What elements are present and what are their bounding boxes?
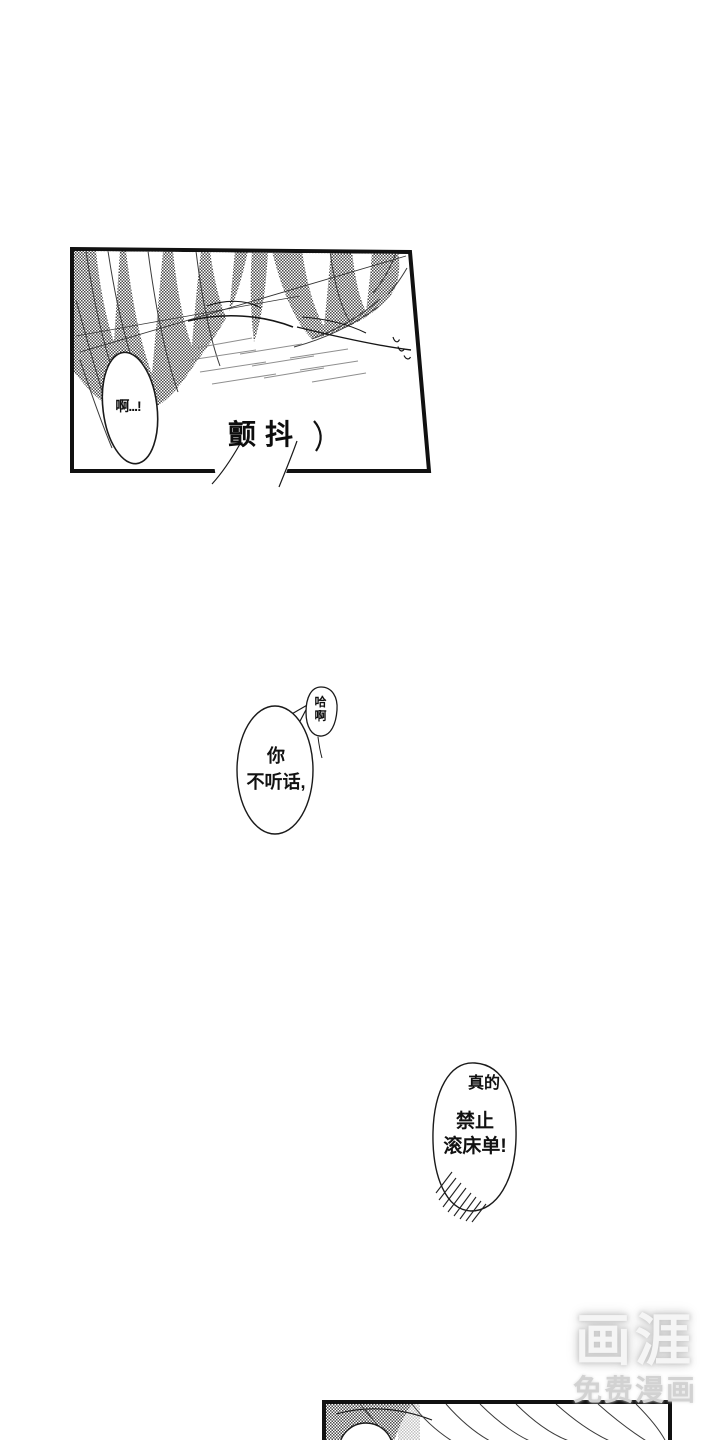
panel-artwork [0,0,720,1440]
watermark-logo: 画涯 [556,1310,714,1372]
manga-page: 颤抖 啊...! 哈啊 你 不听话, 真的 禁止 滚床单! 画涯 免费漫画 [0,0,720,1440]
bottom-bubble-line2: 禁止 [428,1109,522,1134]
watermark-tagline: 免费漫画 [556,1375,714,1407]
middle-bubble-line1: 你 [234,743,318,769]
bottom-bubble-line1: 真的 [452,1069,516,1093]
bottom-bubble-text: 禁止 滚床单! [428,1109,522,1159]
bottom-bubble-line3: 滚床单! [428,1134,522,1159]
middle-bubble-text: 你 不听话, [234,743,318,795]
middle-bubble-line2: 不听话, [234,769,318,795]
top-panel [72,249,429,490]
bubble-ah-text: 啊...! [101,396,155,416]
watermark: 画涯 免费漫画 [556,1310,714,1407]
bottom-panel [324,1402,670,1440]
sfx-trembling-text: 颤抖 [228,413,338,453]
small-gasp-text: 哈啊 [313,695,328,723]
